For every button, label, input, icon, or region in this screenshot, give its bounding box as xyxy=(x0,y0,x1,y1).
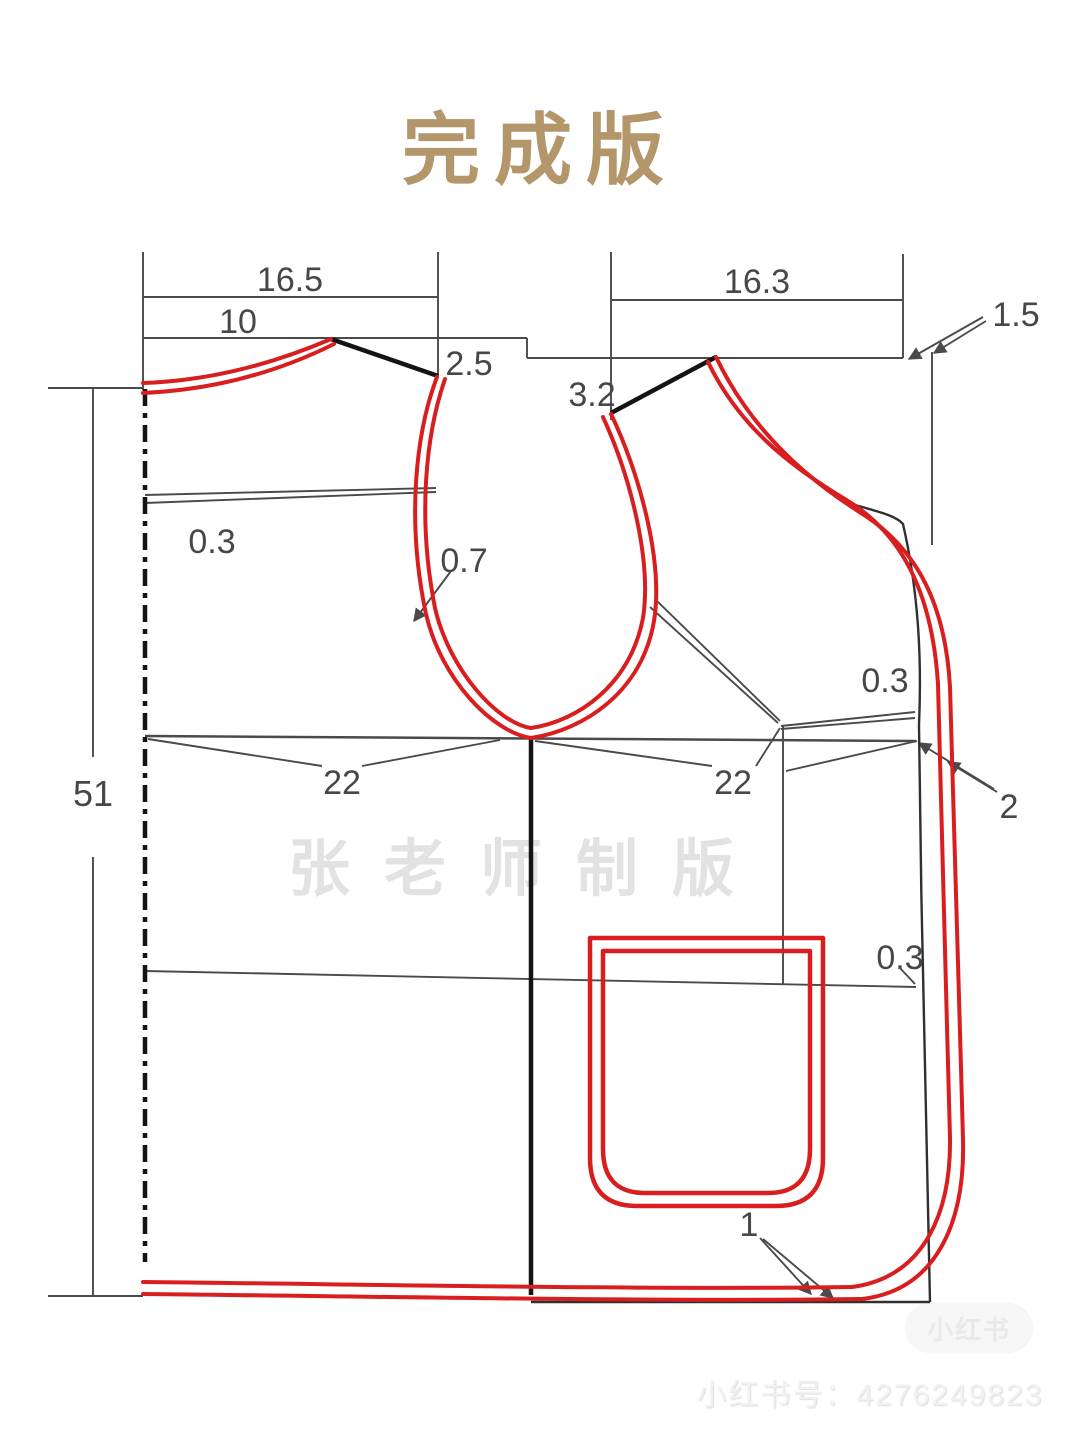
side-diagonal xyxy=(786,741,917,771)
pocket-outer xyxy=(590,938,823,1206)
hem-allowance-bottom xyxy=(143,1294,862,1300)
leader-2-b xyxy=(948,762,997,792)
armhole-leader-b xyxy=(657,601,780,721)
dimension-labels: 16.5 10 2.5 3.2 16.3 1.5 0.3 0.7 0.3 2 5… xyxy=(73,261,1040,1244)
hem-allowance-top xyxy=(143,1282,852,1288)
dim-label-3-2: 3.2 xyxy=(568,376,615,414)
pattern-edges-dark xyxy=(531,505,930,1302)
construction-lines xyxy=(48,252,997,1298)
leader-22-right-b xyxy=(756,728,780,766)
dim-label-10: 10 xyxy=(219,303,257,341)
dim-label-0-3-side: 0.3 xyxy=(861,662,908,700)
leader-22-left-b xyxy=(362,740,500,766)
pocket-inner xyxy=(603,951,810,1193)
armhole-right-outer xyxy=(531,414,656,738)
dim-label-16-3: 16.3 xyxy=(724,263,790,301)
dim-label-16-5: 16.5 xyxy=(257,261,323,299)
leader-1-5-a xyxy=(909,317,983,359)
shoulder-seam-left xyxy=(331,339,438,376)
dim-label-2: 2 xyxy=(1000,788,1019,826)
leader-22-left-a xyxy=(148,739,322,766)
front-edge-construction xyxy=(855,505,930,1302)
dim-label-22-right: 22 xyxy=(714,764,752,802)
seam-lines xyxy=(145,339,716,1295)
dim-label-2-5: 2.5 xyxy=(445,345,492,383)
dim-label-1-5: 1.5 xyxy=(992,296,1039,334)
leader-1-5-b xyxy=(934,321,986,353)
dim-label-0-7: 0.7 xyxy=(440,542,487,580)
neckline-left-outer xyxy=(143,339,331,383)
armhole-leader-a xyxy=(650,607,778,723)
shoulder-seam-right xyxy=(611,357,716,413)
dim-label-1: 1 xyxy=(740,1206,759,1244)
dim-label-0-3-pocket: 0.3 xyxy=(876,939,923,977)
leader-22-right-a xyxy=(535,741,712,766)
front-opening-inner xyxy=(708,362,950,1287)
dim-label-51: 51 xyxy=(73,773,113,814)
dim-label-0-3-neck: 0.3 xyxy=(188,523,235,561)
pattern-diagram: 16.5 10 2.5 3.2 16.3 1.5 0.3 0.7 0.3 2 5… xyxy=(0,0,1080,1439)
leader-2-a xyxy=(919,743,994,789)
dim-label-22-left: 22 xyxy=(323,764,361,802)
red-pattern-outline xyxy=(143,339,963,1300)
